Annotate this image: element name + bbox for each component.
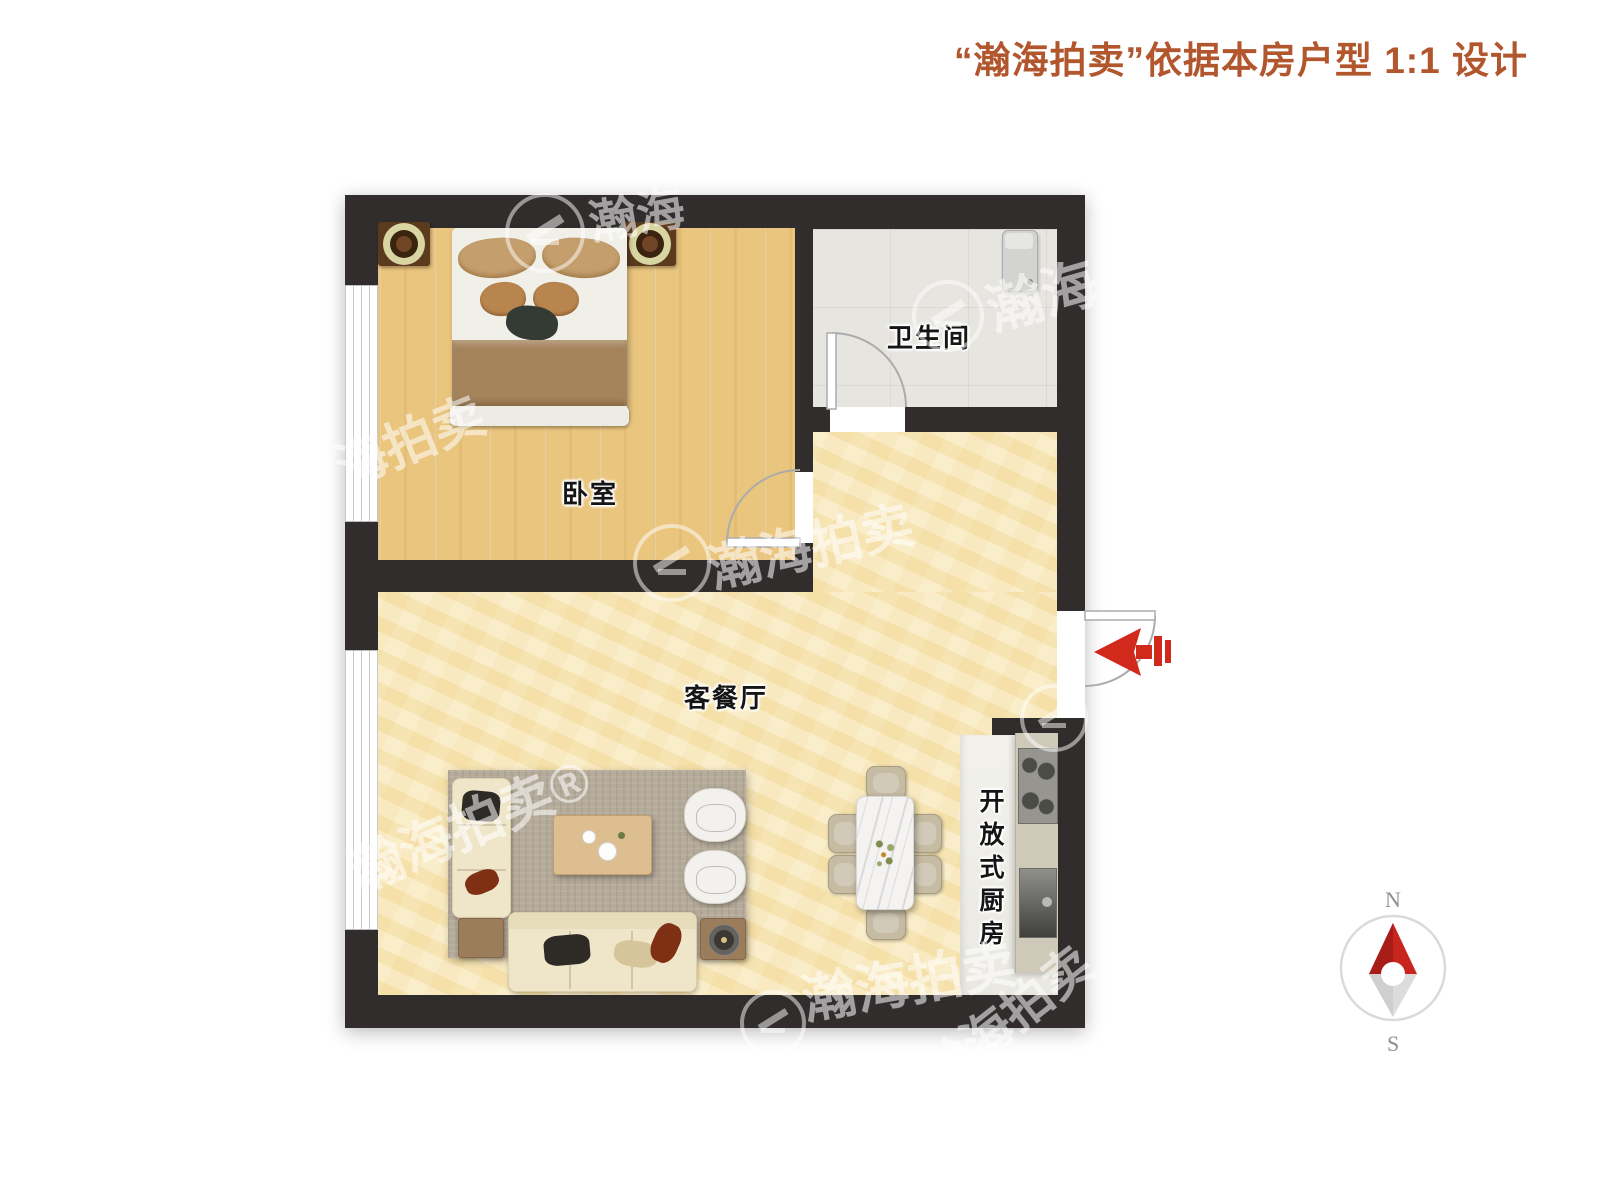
bathroom-door-leaf [827, 333, 836, 409]
compass-south-label: S [1387, 1031, 1399, 1057]
bedroom-door-arc [727, 470, 800, 543]
entry-arrow-icon [1094, 628, 1171, 676]
bedroom-label: 卧室 [562, 474, 618, 511]
compass: N S [1330, 885, 1460, 1057]
compass-north-label: N [1385, 887, 1401, 913]
floorplan-page: “瀚海拍卖”依据本房户型 1:1 设计 [0, 0, 1600, 1200]
bathroom-label: 卫生间 [887, 318, 971, 355]
compass-rose-icon [1338, 913, 1448, 1023]
entrance-door-leaf [1085, 611, 1155, 620]
living-dining-label: 客餐厅 [684, 678, 768, 715]
bedroom-door-leaf [727, 538, 800, 547]
kitchen-label: 开放式厨房 [972, 788, 1008, 953]
